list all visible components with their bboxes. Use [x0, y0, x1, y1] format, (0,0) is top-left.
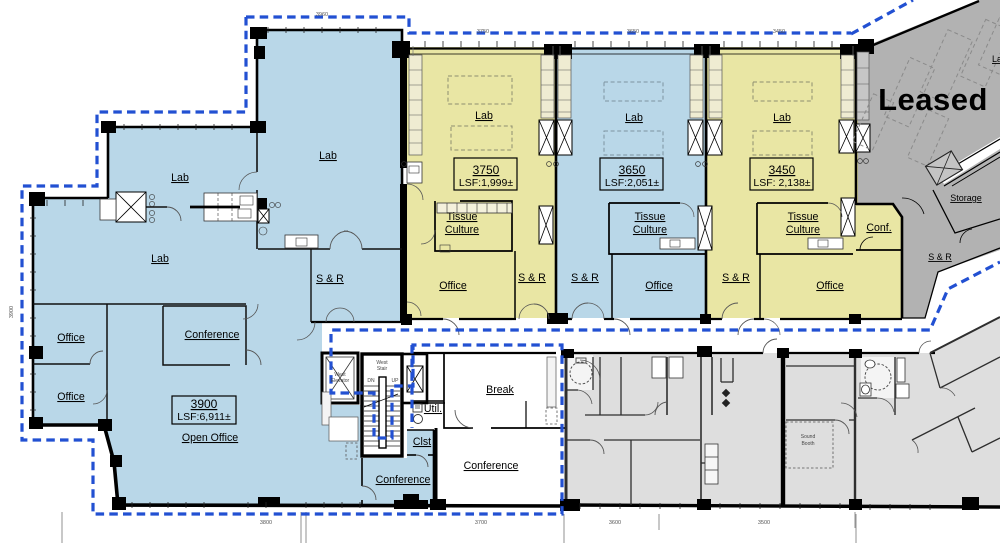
svg-text:Lab: Lab [625, 112, 643, 124]
svg-text:La: La [992, 54, 1000, 64]
svg-text:Lab: Lab [171, 172, 189, 184]
svg-text:Lab: Lab [773, 112, 791, 124]
svg-text:Conference: Conference [376, 474, 431, 486]
svg-text:Office: Office [816, 280, 844, 292]
svg-text:Util.: Util. [424, 403, 442, 415]
svg-text:3600: 3600 [609, 520, 621, 526]
svg-text:Office: Office [57, 332, 85, 344]
svg-text:Culture: Culture [445, 224, 479, 236]
svg-text:3960: 3960 [316, 12, 328, 18]
svg-text:UP: UP [392, 378, 400, 384]
svg-text:S & R: S & R [722, 272, 750, 284]
svg-text:Elevator: Elevator [331, 378, 350, 384]
svg-text:3700: 3700 [475, 520, 487, 526]
svg-text:LSF:6,911±: LSF:6,911± [177, 411, 231, 423]
svg-text:Lab: Lab [475, 110, 493, 122]
svg-text:Sound: Sound [801, 434, 816, 440]
svg-text:3750: 3750 [477, 29, 489, 35]
svg-text:3650: 3650 [619, 163, 646, 177]
svg-text:Office: Office [439, 280, 467, 292]
svg-text:3650: 3650 [627, 29, 639, 35]
svg-text:Stair: Stair [377, 366, 388, 372]
svg-text:3900: 3900 [9, 306, 15, 318]
svg-text:Tissue: Tissue [788, 211, 819, 223]
svg-text:Conf.: Conf. [866, 222, 891, 234]
svg-text:3750: 3750 [473, 163, 500, 177]
svg-text:3900: 3900 [191, 397, 218, 411]
svg-text:Tissue: Tissue [447, 211, 478, 223]
svg-text:LSF: 2,138±: LSF: 2,138± [753, 177, 810, 189]
svg-text:S & R: S & R [571, 272, 599, 284]
svg-text:Conference: Conference [185, 329, 240, 341]
svg-text:3500: 3500 [758, 520, 770, 526]
svg-text:Office: Office [57, 391, 85, 403]
svg-text:Leased: Leased [878, 82, 988, 117]
svg-text:S & R: S & R [316, 273, 344, 285]
svg-text:Booth: Booth [801, 441, 814, 447]
svg-text:DN: DN [367, 378, 375, 384]
svg-text:S & R: S & R [928, 252, 952, 262]
svg-text:Conference: Conference [464, 460, 519, 472]
svg-text:S & R: S & R [518, 272, 546, 284]
svg-text:Tissue: Tissue [635, 211, 666, 223]
svg-text:Culture: Culture [786, 224, 820, 236]
svg-text:Lab: Lab [151, 253, 169, 265]
svg-text:Open Office: Open Office [182, 432, 238, 444]
svg-text:Clst: Clst [413, 436, 431, 448]
svg-text:3450: 3450 [769, 163, 796, 177]
svg-text:3450: 3450 [773, 29, 785, 35]
svg-text:Culture: Culture [633, 224, 667, 236]
svg-text:LSF:1,999±: LSF:1,999± [459, 177, 513, 189]
svg-text:Storage: Storage [950, 193, 982, 203]
svg-text:3800: 3800 [260, 520, 272, 526]
svg-text:Lab: Lab [319, 150, 337, 162]
svg-text:Break: Break [486, 384, 514, 396]
svg-text:LSF:2,051±: LSF:2,051± [605, 177, 659, 189]
svg-text:Office: Office [645, 280, 673, 292]
